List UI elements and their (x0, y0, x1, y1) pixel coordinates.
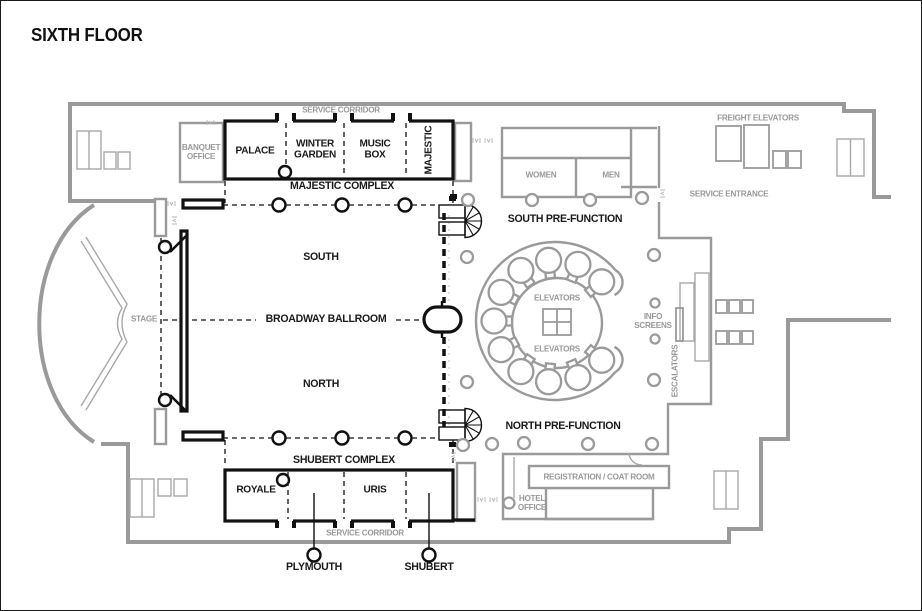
service-elevator-grid (543, 309, 571, 335)
stage-proscenium-wall (159, 231, 187, 411)
elevator-cabs (482, 248, 615, 394)
room-palace-label: PALACE (236, 145, 275, 156)
wall-segment (183, 200, 223, 208)
wall-tick (449, 442, 456, 447)
ballroom-north-label: NORTH (303, 379, 339, 391)
wall-capsule (424, 307, 461, 332)
movable-wall (424, 213, 461, 427)
stairs-icon-bottom-left (130, 479, 187, 517)
ballroom-south-label: SOUTH (303, 252, 339, 264)
room-uris-label: URIS (364, 484, 387, 495)
service-corridor-top-label: SERVICE CORRIDOR (302, 105, 380, 114)
stairs-icon-top-right (837, 139, 864, 176)
room-music-box-label: MUSIC BOX (354, 139, 396, 162)
shubert-complex-label: SHUBERT COMPLEX (293, 455, 395, 467)
info-screens-label: INFO SCREENS (630, 312, 676, 330)
vestibule (457, 463, 475, 521)
room-royale-label: ROYALE (236, 484, 275, 495)
elevators-bottom-label: ELEVATORS (534, 344, 580, 353)
stage-apse-wall (39, 205, 94, 442)
shubert-complex-block (225, 470, 453, 528)
floor-plan: SIXTH FLOOR SERVICE CORRIDOR BANQUET OFF… (0, 0, 922, 611)
vestibule (155, 409, 166, 444)
room-majestic-label: MAJESTIC (423, 126, 434, 175)
escalators-icon (680, 273, 709, 361)
elevators-top-label: ELEVATORS (534, 293, 580, 302)
hotel-office-label: HOTEL OFFICE (513, 494, 551, 512)
south-prefunction-label: SOUTH PRE-FUNCTION (508, 214, 622, 226)
vestibule (155, 199, 166, 236)
vestibule (455, 123, 471, 181)
freight-elevators-icon (716, 125, 801, 168)
wall-segment (183, 432, 223, 440)
equipment-squares (716, 300, 753, 344)
freight-elevators-label: FREIGHT ELEVATORS (717, 113, 799, 122)
service-corridor-bottom-label: SERVICE CORRIDOR (326, 528, 404, 537)
elevator-core (476, 242, 623, 400)
service-entrance-label: SERVICE ENTRANCE (690, 189, 769, 198)
stage-chevron (81, 237, 127, 410)
room-shubert-label: SHUBERT (404, 562, 453, 574)
registration-coat-room-label: REGISTRATION / COAT ROOM (543, 472, 654, 481)
restrooms (502, 128, 657, 197)
spiral-staircase-icon-top (439, 205, 482, 238)
room-plymouth-label: PLYMOUTH (286, 562, 342, 574)
stairs-icon-bottom-right (714, 471, 738, 509)
page-title: SIXTH FLOOR (31, 25, 143, 46)
north-prefunction-label: NORTH PRE-FUNCTION (505, 421, 620, 433)
floor-plan-canvas (1, 1, 921, 610)
stage-label: STAGE (131, 314, 157, 323)
escalators-label: ESCALATORS (670, 345, 679, 398)
majestic-complex-label: MAJESTIC COMPLEX (290, 181, 394, 193)
room-winter-garden-label: WINTER GARDEN (289, 139, 341, 162)
stairs-icon-top-left (77, 131, 130, 169)
ballroom-name-label: BROADWAY BALLROOM (266, 314, 387, 326)
banquet-office-label: BANQUET OFFICE (178, 143, 224, 161)
men-restroom-label: MEN (602, 170, 619, 179)
women-restroom-label: WOMEN (526, 170, 557, 179)
